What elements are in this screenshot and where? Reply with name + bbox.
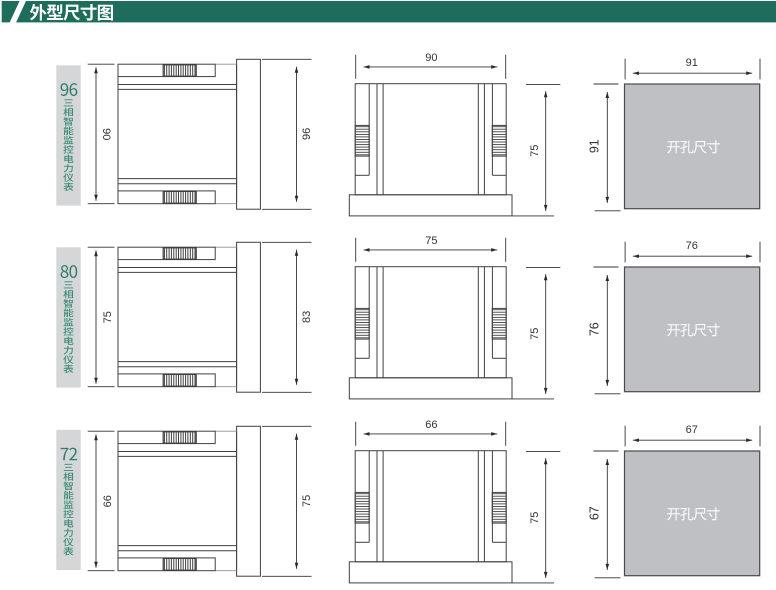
svg-text:75: 75 [529, 145, 541, 157]
svg-text:75: 75 [301, 495, 313, 507]
svg-text:90: 90 [425, 52, 437, 64]
svg-text:75: 75 [529, 512, 541, 524]
svg-text:76: 76 [686, 240, 698, 252]
svg-text:66: 66 [102, 495, 114, 507]
svg-text:83: 83 [301, 311, 313, 323]
svg-text:90: 90 [100, 128, 112, 140]
svg-text:75: 75 [425, 235, 437, 247]
svg-text:75: 75 [102, 311, 114, 323]
svg-text:67: 67 [686, 424, 698, 436]
svg-text:76: 76 [588, 322, 602, 336]
svg-text:75: 75 [529, 328, 541, 340]
svg-text:67: 67 [588, 506, 602, 520]
svg-text:66: 66 [425, 419, 437, 431]
svg-text:91: 91 [686, 57, 698, 69]
svg-text:91: 91 [588, 139, 602, 153]
svg-text:96: 96 [301, 128, 313, 140]
